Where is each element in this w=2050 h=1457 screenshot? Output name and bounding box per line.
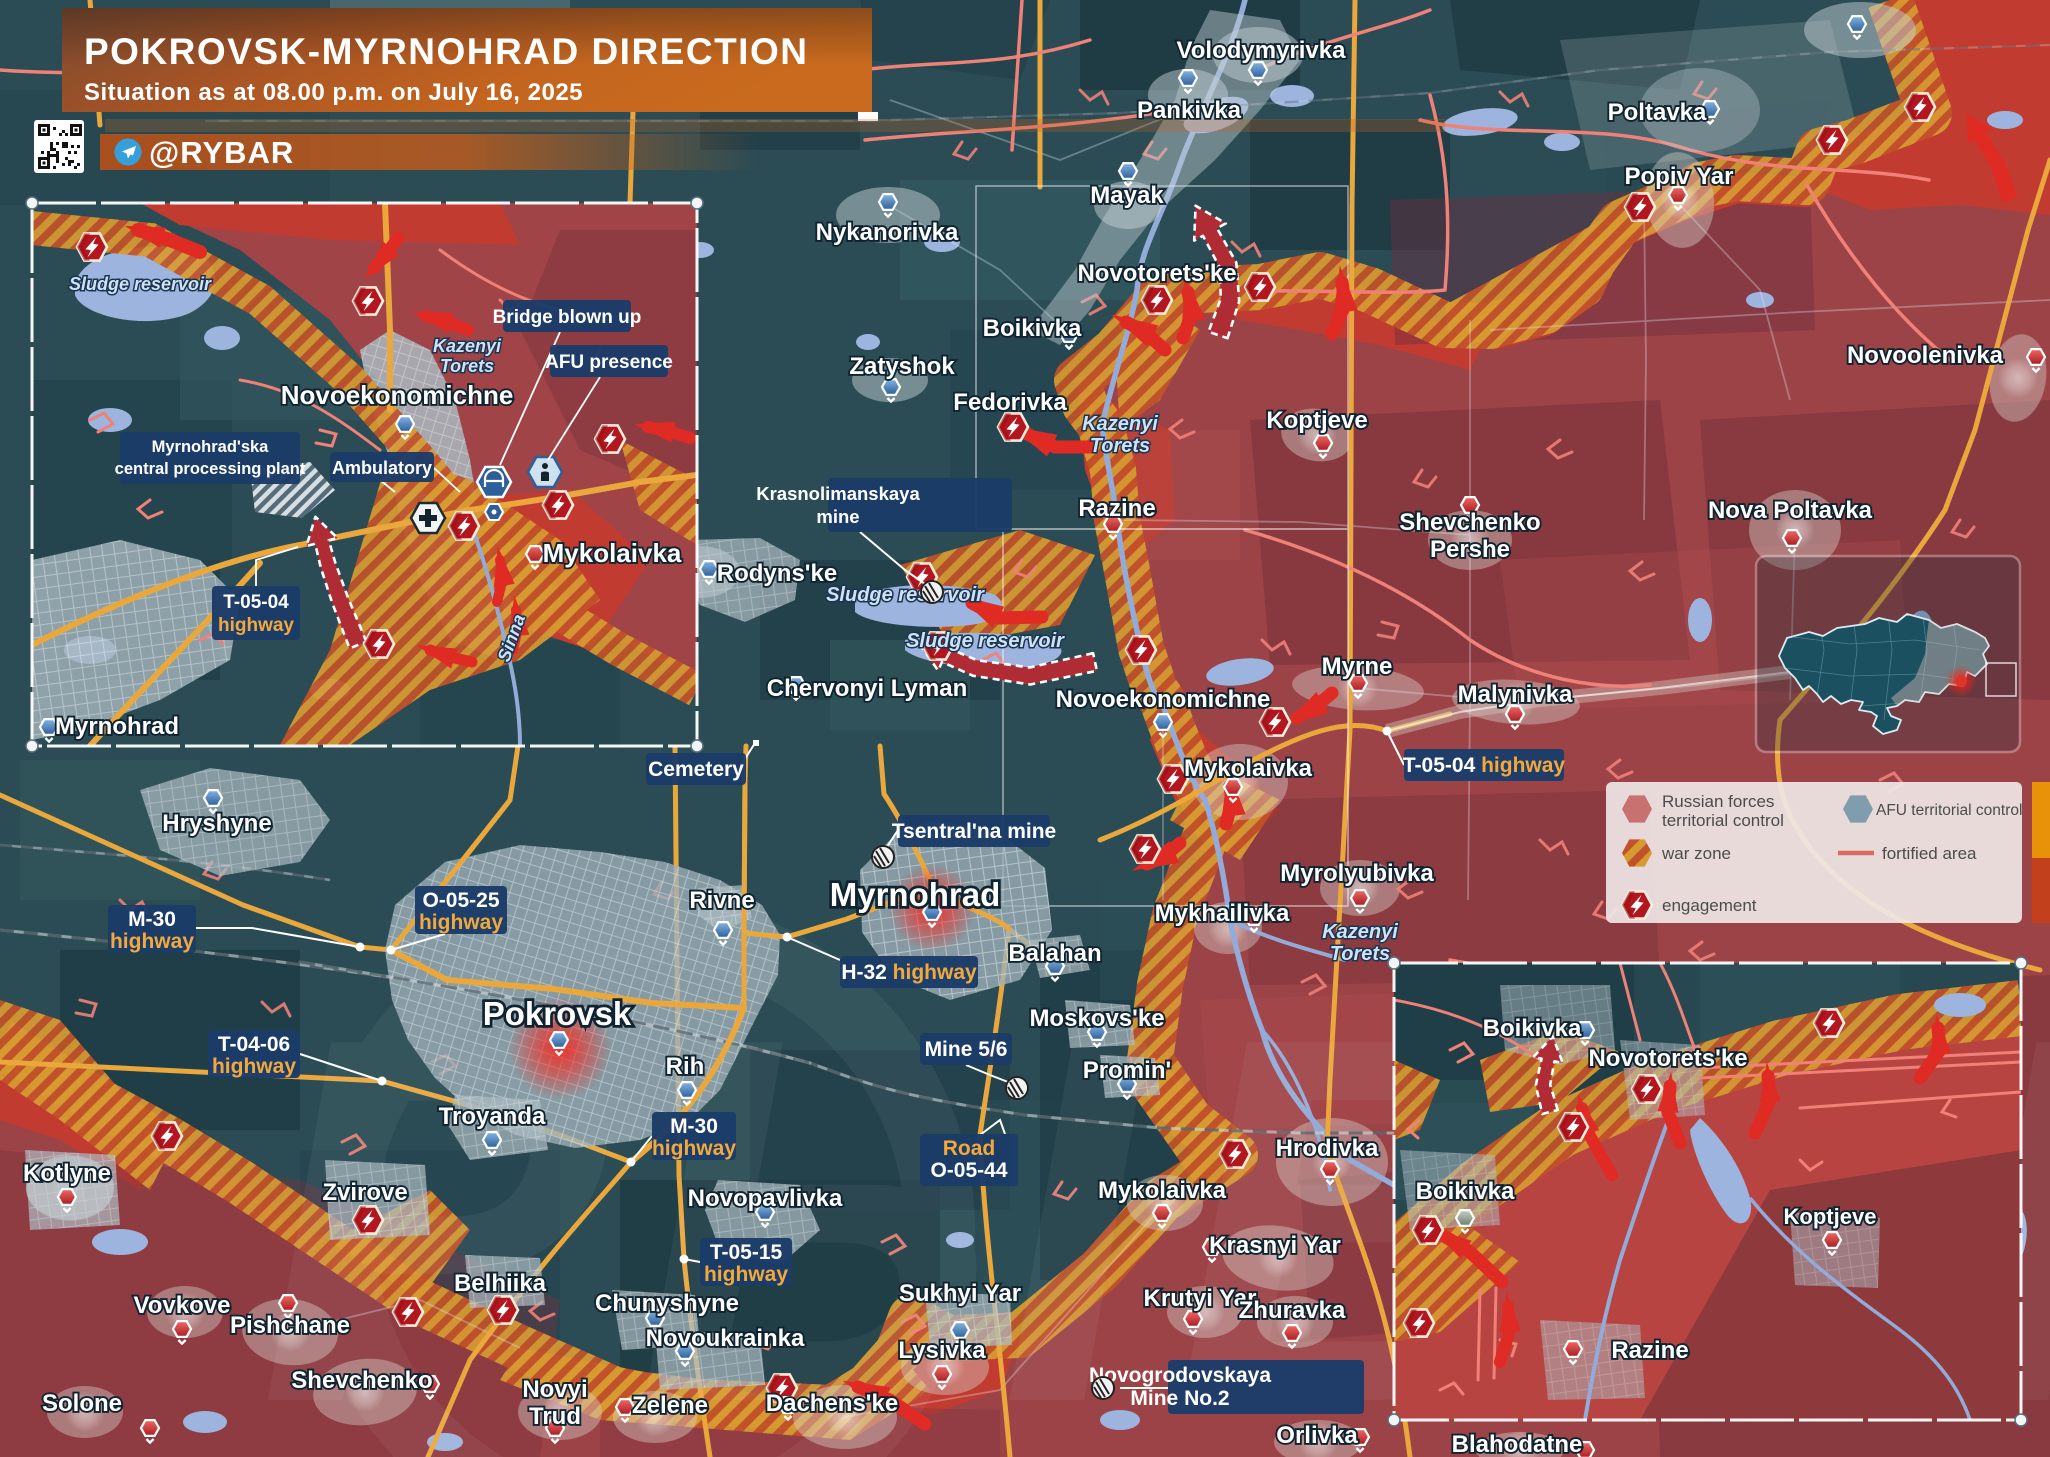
svg-text:Sludge reservoir: Sludge reservoir: [69, 274, 212, 294]
svg-text:Myrnohrad: Myrnohrad: [830, 876, 1001, 913]
svg-text:Road: Road: [943, 1137, 996, 1160]
svg-text:Sludge reservoir: Sludge reservoir: [906, 630, 1065, 652]
svg-text:POKROVSK-MYRNOHRAD DIRECTION: POKROVSK-MYRNOHRAD DIRECTION: [84, 31, 808, 72]
svg-text:Rih: Rih: [666, 1053, 705, 1080]
svg-text:Novoekonomichne: Novoekonomichne: [281, 380, 514, 410]
svg-text:Pershe: Pershe: [1430, 536, 1510, 563]
svg-text:Kazenyi: Kazenyi: [1322, 921, 1398, 943]
svg-text:Vovkove: Vovkove: [134, 1292, 231, 1319]
svg-text:Blahodatne: Blahodatne: [1452, 1431, 1583, 1457]
svg-text:O-05-25: O-05-25: [422, 889, 499, 912]
svg-text:Myrolyubivka: Myrolyubivka: [1280, 860, 1434, 887]
svg-text:Situation as at 08.00 p.m. on: Situation as at 08.00 p.m. on July 16, 2…: [84, 79, 583, 106]
svg-text:Zelene: Zelene: [632, 1392, 708, 1419]
svg-text:Bridge blown up: Bridge blown up: [493, 307, 642, 328]
svg-text:Kotlyne: Kotlyne: [23, 1160, 111, 1187]
svg-text:Malynivka: Malynivka: [1458, 681, 1573, 708]
svg-text:Trud: Trud: [529, 1403, 581, 1430]
svg-text:Novoekonomichne: Novoekonomichne: [1056, 686, 1271, 713]
svg-text:Kazenyi: Kazenyi: [1082, 413, 1158, 435]
svg-text:Razine: Razine: [1611, 1337, 1688, 1364]
svg-text:Novogrodovskaya: Novogrodovskaya: [1089, 1364, 1271, 1387]
svg-text:Promin': Promin': [1083, 1057, 1171, 1084]
svg-text:T-05-04: T-05-04: [223, 592, 289, 613]
svg-text:Myrnohrad'ska: Myrnohrad'ska: [152, 438, 270, 456]
svg-text:Novyi: Novyi: [522, 1376, 587, 1403]
svg-text:AFU presence: AFU presence: [545, 352, 673, 373]
svg-text:Boikivka: Boikivka: [1483, 1015, 1582, 1042]
svg-text:highway: highway: [110, 930, 194, 953]
svg-text:Fedorivka: Fedorivka: [953, 389, 1067, 416]
svg-text:Orlivka: Orlivka: [1276, 1422, 1358, 1449]
svg-text:Troyanda: Troyanda: [439, 1103, 546, 1130]
svg-text:Zhuravka: Zhuravka: [1239, 1297, 1346, 1324]
svg-text:AFU territorial control: AFU territorial control: [1876, 802, 2022, 819]
svg-text:Mayak: Mayak: [1090, 182, 1164, 209]
svg-text:Kazenyi: Kazenyi: [433, 336, 502, 356]
svg-text:Koptjeve: Koptjeve: [1266, 407, 1367, 434]
svg-text:highway: highway: [704, 1263, 788, 1286]
svg-text:H-32 highway: H-32 highway: [841, 961, 977, 984]
svg-text:Moskovs'ke: Moskovs'ke: [1029, 1005, 1164, 1032]
svg-text:Shevchenko: Shevchenko: [1399, 509, 1540, 536]
svg-text:T-04-06: T-04-06: [218, 1033, 290, 1056]
svg-text:Rivne: Rivne: [689, 887, 754, 914]
svg-text:Krasnyi Yar: Krasnyi Yar: [1209, 1232, 1341, 1259]
svg-text:Pishchane: Pishchane: [230, 1312, 350, 1339]
svg-text:Myrnohrad: Myrnohrad: [55, 713, 179, 740]
svg-text:M-30: M-30: [670, 1115, 718, 1138]
svg-text:Belhiika: Belhiika: [454, 1270, 547, 1297]
svg-text:Poltavka: Poltavka: [1608, 99, 1707, 126]
svg-text:highway: highway: [652, 1137, 736, 1160]
svg-text:O-05-44: O-05-44: [930, 1159, 1007, 1182]
svg-text:Sludge reservoir: Sludge reservoir: [826, 584, 985, 606]
svg-text:central processing plant: central processing plant: [115, 460, 306, 478]
svg-text:Cemetery: Cemetery: [648, 758, 744, 781]
svg-text:Pokrovsk: Pokrovsk: [483, 995, 632, 1032]
svg-text:T-05-04 highway: T-05-04 highway: [1403, 754, 1566, 777]
svg-text:Dachens'ke: Dachens'ke: [766, 1390, 898, 1417]
svg-text:Chervonyi Lyman: Chervonyi Lyman: [767, 675, 968, 702]
svg-text:Mykolaivka: Mykolaivka: [1098, 1177, 1227, 1204]
svg-text:Novopavlivka: Novopavlivka: [688, 1185, 843, 1212]
svg-text:highway: highway: [212, 1055, 296, 1078]
svg-text:Krasnolimanskaya: Krasnolimanskaya: [756, 483, 920, 504]
svg-text:Ambulatory: Ambulatory: [332, 458, 432, 478]
svg-text:Nova Poltavka: Nova Poltavka: [1708, 497, 1873, 524]
svg-text:Mykolaivka: Mykolaivka: [543, 538, 682, 568]
svg-text:war zone: war zone: [1661, 844, 1731, 863]
svg-text:Novotorets'ke: Novotorets'ke: [1588, 1045, 1747, 1072]
svg-text:Solone: Solone: [42, 1390, 122, 1417]
svg-text:highway: highway: [218, 615, 294, 636]
svg-text:Nykanorivka: Nykanorivka: [816, 219, 959, 246]
svg-text:T-05-15: T-05-15: [710, 1241, 783, 1264]
svg-text:mine: mine: [816, 506, 859, 527]
svg-text:Myrne: Myrne: [1322, 653, 1393, 680]
svg-text:Novoolenivka: Novoolenivka: [1847, 342, 2004, 369]
svg-text:highway: highway: [419, 911, 503, 934]
svg-text:Rodyns'ke: Rodyns'ke: [717, 560, 837, 587]
svg-text:Zvirove: Zvirove: [322, 1179, 407, 1206]
svg-text:Hryshyne: Hryshyne: [162, 810, 271, 837]
svg-text:Mine 5/6: Mine 5/6: [925, 1038, 1008, 1061]
svg-text:Koptjeve: Koptjeve: [1784, 1204, 1877, 1229]
svg-text:Tsentral'na mine: Tsentral'na mine: [892, 820, 1056, 843]
svg-text:Novoukrainka: Novoukrainka: [646, 1325, 805, 1352]
svg-text:Lysivka: Lysivka: [898, 1337, 986, 1364]
svg-text:Popiv Yar: Popiv Yar: [1625, 163, 1734, 190]
svg-text:Boikivka: Boikivka: [983, 315, 1082, 342]
svg-text:Mykolaivka: Mykolaivka: [1184, 755, 1313, 782]
svg-text:Chunyshyne: Chunyshyne: [595, 1290, 739, 1317]
svg-text:Hrodivka: Hrodivka: [1276, 1135, 1379, 1162]
svg-text:Mykhailivka: Mykhailivka: [1155, 900, 1290, 927]
svg-text:fortified area: fortified area: [1882, 844, 1977, 863]
svg-text:territorial control: territorial control: [1662, 811, 1784, 830]
svg-text:Zatyshok: Zatyshok: [849, 353, 955, 380]
svg-text:Sukhyi Yar: Sukhyi Yar: [899, 1280, 1021, 1307]
svg-text:Torets: Torets: [1330, 943, 1390, 965]
svg-text:Novotorets'ke: Novotorets'ke: [1077, 260, 1236, 287]
svg-text:Balahan: Balahan: [1008, 940, 1101, 967]
svg-text:Torets: Torets: [1090, 435, 1150, 457]
svg-text:@RYBAR: @RYBAR: [149, 135, 294, 170]
svg-text:Razine: Razine: [1078, 495, 1155, 522]
svg-text:M-30: M-30: [128, 908, 176, 931]
svg-text:engagement: engagement: [1662, 896, 1757, 915]
svg-text:Mine No.2: Mine No.2: [1130, 1387, 1229, 1410]
svg-text:Volodymyrivka: Volodymyrivka: [1177, 37, 1347, 64]
svg-text:Torets: Torets: [440, 356, 494, 376]
svg-text:Russian forces: Russian forces: [1662, 792, 1774, 811]
svg-text:Shevchenko: Shevchenko: [291, 1367, 432, 1394]
svg-text:Boikivka: Boikivka: [1416, 1178, 1515, 1205]
